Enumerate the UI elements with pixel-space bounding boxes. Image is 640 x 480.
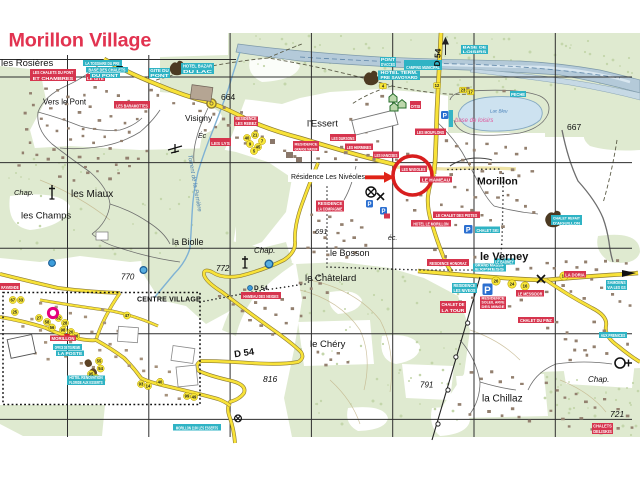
svg-text:Vers le Pont: Vers le Pont <box>43 98 87 107</box>
svg-text:24: 24 <box>510 282 515 287</box>
svg-text:LES LYS: LES LYS <box>211 141 230 146</box>
svg-text:BASE DES CHALETS: BASE DES CHALETS <box>89 67 126 72</box>
svg-text:HOTEL LE MORILLON: HOTEL LE MORILLON <box>413 221 449 226</box>
svg-text:691: 691 <box>315 227 328 236</box>
svg-text:LES REBEZ: LES REBEZ <box>235 121 256 126</box>
svg-text:HAMEAU DES NEIGES: HAMEAU DES NEIGES <box>243 294 278 299</box>
svg-text:Chap.: Chap. <box>254 246 275 255</box>
svg-text:AUX PREMICES: AUX PREMICES <box>601 333 626 338</box>
svg-text:Résidence Les Nivéoles: Résidence Les Nivéoles <box>291 174 365 181</box>
svg-text:40: 40 <box>245 136 250 141</box>
svg-text:GRANGE MASSIF: GRANGE MASSIF <box>295 146 318 151</box>
svg-text:Morillon: Morillon <box>477 176 518 188</box>
svg-text:816: 816 <box>263 374 277 384</box>
svg-text:40: 40 <box>158 380 163 385</box>
svg-text:664: 664 <box>221 92 235 102</box>
svg-text:P: P <box>484 285 491 296</box>
svg-text:le Verney: le Verney <box>480 251 529 263</box>
svg-text:éc.: éc. <box>388 235 397 242</box>
svg-text:99: 99 <box>185 394 190 399</box>
svg-text:l'Essert: l'Essert <box>307 119 338 130</box>
svg-text:LES HERMINES: LES HERMINES <box>347 145 372 150</box>
svg-text:EXPRESS: EXPRESS <box>475 267 505 271</box>
svg-text:16: 16 <box>523 284 528 289</box>
svg-text:17: 17 <box>468 90 473 95</box>
svg-text:LA POSTE: LA POSTE <box>58 351 83 356</box>
svg-text:LA COMPAGNIE: LA COMPAGNIE <box>318 206 343 211</box>
svg-text:58: 58 <box>45 320 50 325</box>
svg-text:791: 791 <box>420 381 433 390</box>
svg-text:VIA LES GS: VIA LES GS <box>607 285 626 290</box>
svg-text:21: 21 <box>253 133 258 138</box>
svg-text:la Chillaz: la Chillaz <box>482 394 523 405</box>
svg-text:667: 667 <box>567 122 581 132</box>
svg-text:OFFICE DE TOURISME: OFFICE DE TOURISME <box>55 345 81 350</box>
svg-text:DES MINGE: DES MINGE <box>482 305 506 309</box>
svg-text:27: 27 <box>37 316 42 321</box>
svg-text:DELISKIS: DELISKIS <box>593 429 612 434</box>
svg-text:P: P <box>466 227 471 234</box>
svg-text:D'AIGUILLON: D'AIGUILLON <box>553 220 580 225</box>
svg-text:CENTRE VILLAGE: CENTRE VILLAGE <box>137 297 201 304</box>
svg-text:LES NANCISES: LES NANCISES <box>375 153 398 158</box>
svg-text:98: 98 <box>61 328 66 333</box>
svg-text:le Chéry: le Chéry <box>310 339 346 350</box>
svg-text:CHALET DU PINZ: CHALET DU PINZ <box>520 318 552 323</box>
svg-text:base de loisirs: base de loisirs <box>455 118 493 124</box>
svg-text:HOTEL BAZAR: HOTEL BAZAR <box>183 63 213 68</box>
svg-text:le Châtelard: le Châtelard <box>305 273 356 284</box>
svg-text:Morillon Village: Morillon Village <box>9 30 152 52</box>
svg-text:RAYMONDE: RAYMONDE <box>1 285 19 290</box>
svg-text:33: 33 <box>18 298 23 303</box>
svg-text:Chap.: Chap. <box>588 375 609 384</box>
svg-text:23: 23 <box>461 88 466 93</box>
svg-text:D 54: D 54 <box>254 285 268 292</box>
svg-text:Visigny: Visigny <box>185 113 213 123</box>
svg-text:LOISIRS: LOISIRS <box>463 49 487 54</box>
svg-text:LE CHALET DES PISTES: LE CHALET DES PISTES <box>436 213 477 218</box>
svg-text:LA DORIA: LA DORIA <box>565 272 585 277</box>
svg-text:CHALETS: CHALETS <box>593 423 612 428</box>
svg-text:LES MOUFLONS: LES MOUFLONS <box>417 130 444 135</box>
svg-text:LE MESSIDOR: LE MESSIDOR <box>518 291 543 296</box>
svg-text:PONT: PONT <box>150 73 169 78</box>
svg-text:CHALET DE: CHALET DE <box>442 302 465 307</box>
svg-text:56: 56 <box>50 325 55 330</box>
svg-text:DU PONT: DU PONT <box>92 73 119 78</box>
svg-text:MORILLON: MORILLON <box>52 336 76 341</box>
svg-text:MORILLON 1100 LES ESSERTS: MORILLON 1100 LES ESSERTS <box>176 425 218 430</box>
svg-text:55: 55 <box>97 359 102 364</box>
svg-text:772: 772 <box>216 264 230 273</box>
svg-text:770: 770 <box>121 273 135 282</box>
svg-text:14: 14 <box>146 384 151 389</box>
svg-text:OTSI: OTSI <box>411 104 421 109</box>
svg-text:67: 67 <box>10 298 15 303</box>
svg-text:93: 93 <box>139 382 144 387</box>
svg-text:721: 721 <box>610 409 624 419</box>
svg-text:LES CHALETS DU PONT: LES CHALETS DU PONT <box>33 70 74 75</box>
svg-text:26: 26 <box>494 279 499 284</box>
svg-text:FLORIDE AUX ESSERTS: FLORIDE AUX ESSERTS <box>69 380 103 385</box>
svg-text:RESIDENCE HONORAZ: RESIDENCE HONORAZ <box>430 261 467 266</box>
svg-text:DU LAC: DU LAC <box>183 69 213 74</box>
svg-text:LA TOUR: LA TOUR <box>442 308 466 313</box>
svg-text:54: 54 <box>98 366 103 371</box>
svg-text:ET CHAMBRES: ET CHAMBRES <box>33 76 74 81</box>
svg-text:LES BARAMOTTES: LES BARAMOTTES <box>116 103 148 108</box>
svg-text:P: P <box>367 202 371 208</box>
svg-text:LE HAMEAU: LE HAMEAU <box>422 177 451 182</box>
svg-text:Éc: Éc <box>198 131 207 140</box>
svg-text:LES NIVEOS: LES NIVEOS <box>454 288 476 293</box>
svg-text:25: 25 <box>12 310 17 315</box>
svg-text:P: P <box>443 112 448 119</box>
svg-text:le Bosson: le Bosson <box>330 248 370 258</box>
svg-text:RESIDENCE: RESIDENCE <box>318 201 343 206</box>
svg-text:les Rosières: les Rosières <box>1 58 54 69</box>
svg-text:47: 47 <box>125 313 130 318</box>
svg-text:Chap.: Chap. <box>14 188 34 197</box>
svg-text:12: 12 <box>435 83 440 88</box>
svg-text:la Biolle: la Biolle <box>172 237 204 247</box>
svg-text:PECHE: PECHE <box>511 92 525 97</box>
svg-text:les Miaux: les Miaux <box>71 189 113 200</box>
svg-text:49: 49 <box>192 395 197 400</box>
svg-text:LES NIVEOLES: LES NIVEOLES <box>402 167 426 172</box>
svg-text:CHALET SKI: CHALET SKI <box>477 228 499 233</box>
svg-text:Lac Bleu: Lac Bleu <box>490 109 508 114</box>
svg-text:28: 28 <box>63 321 68 326</box>
svg-text:les Champs: les Champs <box>21 211 71 222</box>
svg-text:LA TOSSIARE DU PRE: LA TOSSIARE DU PRE <box>85 61 119 66</box>
svg-text:PRE SAVOYARD: PRE SAVOYARD <box>381 75 418 80</box>
svg-text:D'ACCES: D'ACCES <box>381 62 395 67</box>
svg-text:LES DURSONS: LES DURSONS <box>332 136 355 141</box>
svg-text:D 54: D 54 <box>432 48 443 67</box>
